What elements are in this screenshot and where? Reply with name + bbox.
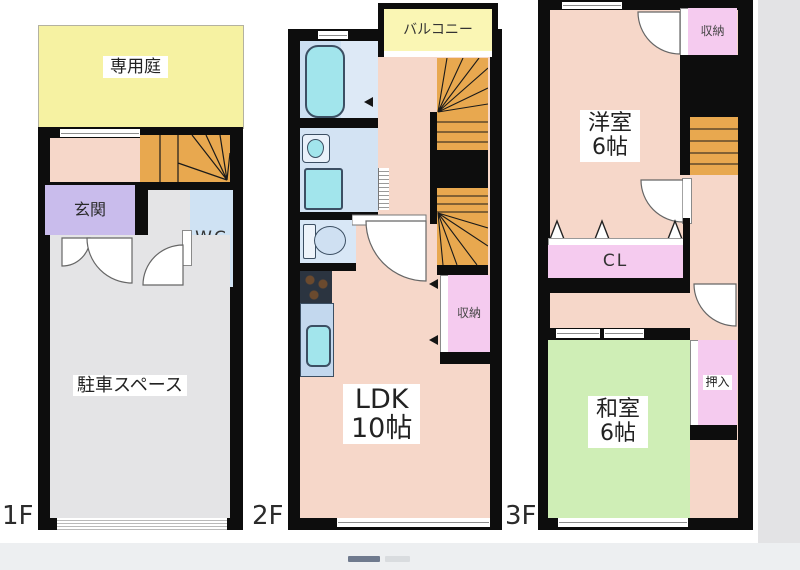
bathtub-icon <box>305 45 345 118</box>
room-bathroom <box>300 41 378 118</box>
stairs-icon <box>140 135 230 182</box>
garage-shutter-icon <box>57 518 227 530</box>
room-washroom <box>300 128 378 212</box>
oshiire-label: 押入 <box>703 375 731 390</box>
shelf-icon <box>378 168 389 210</box>
door-arc-icon <box>50 235 230 300</box>
garden-area: 専用庭 <box>38 25 244 129</box>
floorplan-viewer: 専用庭 玄関 WC 駐車スペース <box>0 0 800 570</box>
sliding-door-icon <box>604 329 644 338</box>
wall <box>680 55 690 175</box>
wall <box>430 112 437 224</box>
room-closet: CL <box>548 245 683 278</box>
corridor-1f <box>148 190 192 235</box>
door-arc-icon <box>352 213 438 285</box>
closet-door-icon <box>548 218 688 240</box>
room-hall-1f <box>50 138 140 182</box>
wall <box>440 352 490 364</box>
entrance-label: 玄関 <box>74 202 106 219</box>
door-swing-icon <box>429 335 438 345</box>
wall <box>300 263 356 271</box>
floor-label-2f: 2F <box>252 501 284 531</box>
kitchen-counter <box>300 303 334 377</box>
room-toilet <box>300 220 356 263</box>
floor-label-3f: 3F <box>505 501 537 531</box>
storage-label: 収納 <box>700 25 724 38</box>
window-icon <box>337 518 490 527</box>
balcony: バルコニー <box>378 3 498 57</box>
kitchen-sink-icon <box>306 325 331 367</box>
japanese-room-size: 6帖 <box>596 422 640 446</box>
ldk-size: 10帖 <box>351 414 412 443</box>
sliding-door-icon <box>556 329 600 338</box>
storage-label: 収納 <box>457 307 481 320</box>
door-arc-icon <box>638 176 683 224</box>
room-storage-3f: 収納 <box>688 8 737 55</box>
room-entrance: 玄関 <box>45 185 135 235</box>
room-storage-2f: 収納 <box>448 275 490 352</box>
balcony-label: バルコニー <box>403 23 473 38</box>
door-swing-icon <box>429 279 438 289</box>
closet-label: CL <box>603 253 628 271</box>
floor-plan-2f: 収納 LDK 10帖 <box>288 29 502 530</box>
stove-icon <box>300 271 332 303</box>
window-icon <box>562 2 622 9</box>
door-arc-icon <box>636 10 680 56</box>
window-icon <box>318 31 348 39</box>
japanese-room-name: 和室 <box>596 398 640 422</box>
japanese-room-label: 和室 6帖 <box>588 396 648 448</box>
western-room-name: 洋室 <box>588 112 632 136</box>
window-icon <box>558 518 688 527</box>
ldk-name: LDK <box>351 385 412 414</box>
wall <box>690 425 737 440</box>
carousel-bar-inactive[interactable] <box>385 556 410 562</box>
door-swing-icon <box>364 97 373 107</box>
garden-label: 専用庭 <box>103 56 168 78</box>
western-room-size: 6帖 <box>588 136 632 160</box>
floor-label-1f: 1F <box>2 501 34 531</box>
balcony-floor: バルコニー <box>384 9 492 51</box>
wall <box>548 278 690 293</box>
wall <box>683 218 690 293</box>
stairs-icon <box>690 117 738 175</box>
parking-label: 駐車スペース <box>73 375 187 396</box>
stair-landing <box>437 150 488 188</box>
door-arc-icon <box>690 282 738 330</box>
washing-machine-icon <box>304 168 343 210</box>
window-icon <box>60 129 140 137</box>
floor-plan-1f: 玄関 WC 駐車スペース <box>38 127 243 530</box>
stairs-icon <box>437 58 488 113</box>
stairs-icon <box>437 188 488 265</box>
floor-plan-3f: 収納 洋室 6帖 CL <box>538 0 753 530</box>
carousel-bar-active[interactable] <box>348 556 380 562</box>
room-japanese: 和室 6帖 <box>548 340 690 518</box>
wall <box>437 265 488 275</box>
stairs-icon <box>437 113 488 150</box>
washbasin-icon <box>302 134 330 163</box>
wall <box>300 118 378 128</box>
viewer-right-margin <box>758 0 800 570</box>
ldk-label: LDK 10帖 <box>343 384 420 444</box>
balcony-window <box>384 51 492 57</box>
room-oshiire: 押入 <box>698 340 737 425</box>
toilet-bowl-icon <box>314 226 346 255</box>
western-room-label: 洋室 6帖 <box>580 110 640 162</box>
